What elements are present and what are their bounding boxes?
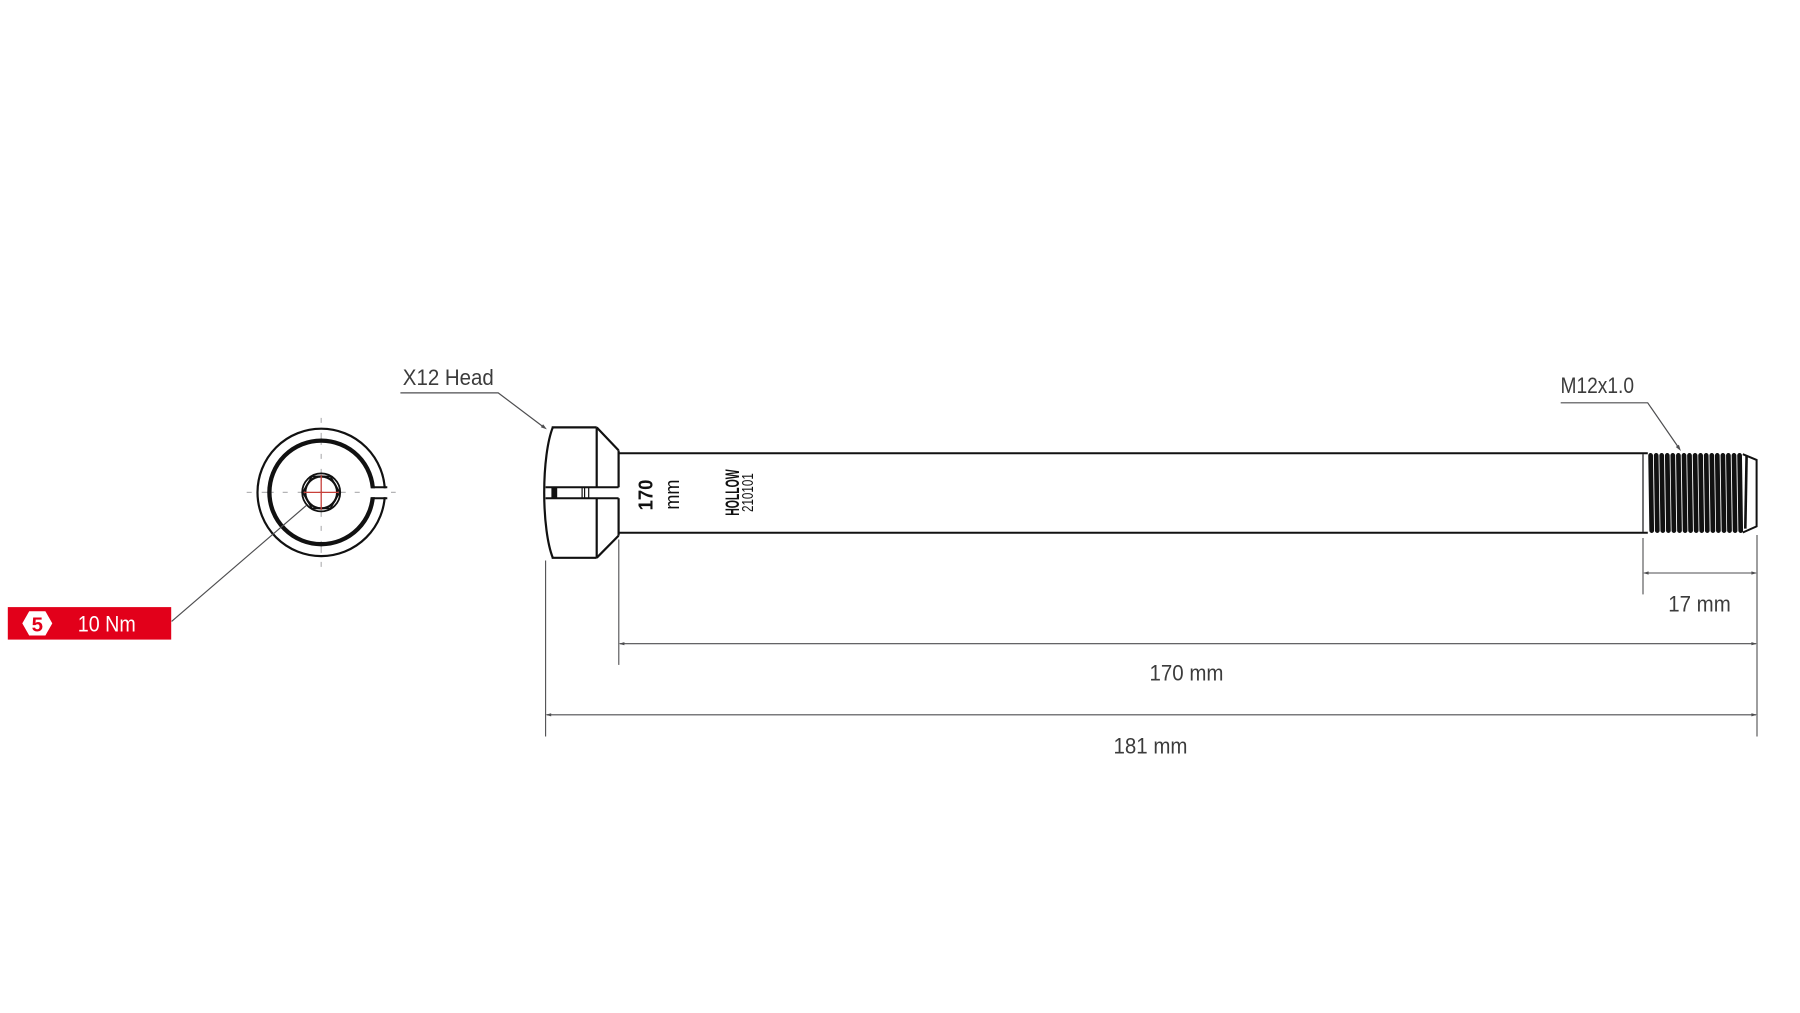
svg-text:17 mm: 17 mm (1668, 591, 1731, 616)
svg-text:210101: 210101 (739, 473, 756, 512)
svg-text:M12x1.0: M12x1.0 (1561, 373, 1635, 398)
svg-text:181 mm: 181 mm (1114, 734, 1188, 759)
svg-text:mm: mm (662, 480, 684, 510)
svg-text:170: 170 (635, 479, 658, 510)
svg-text:5: 5 (32, 613, 43, 636)
svg-text:10 Nm: 10 Nm (78, 612, 136, 637)
svg-text:X12 Head: X12 Head (403, 365, 494, 390)
svg-text:170 mm: 170 mm (1150, 660, 1224, 685)
